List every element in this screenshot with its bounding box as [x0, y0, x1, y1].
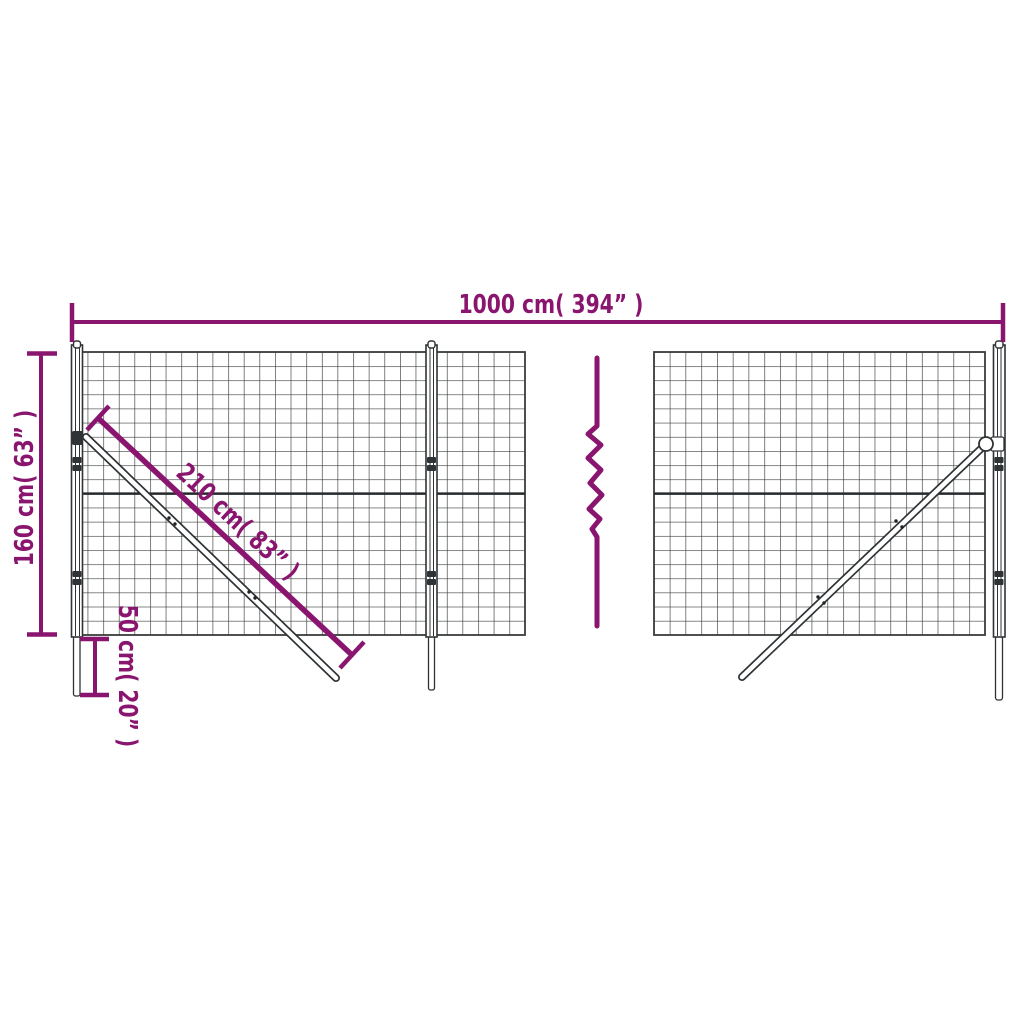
fence-diagram-svg: 1000 cm( 394” ) 160 cm( 63” ) 210 cm( 83…	[0, 0, 1024, 1024]
product-dimension-diagram: 1000 cm( 394” ) 160 cm( 63” ) 210 cm( 83…	[0, 0, 1024, 1024]
ground-offset-dimension-label: 50 cm( 20” )	[112, 605, 142, 748]
post-right-cap	[996, 341, 1004, 348]
width-dimension-label: 1000 cm( 394” )	[459, 290, 644, 320]
panel-break-icon	[588, 358, 602, 626]
fence-post-center	[426, 341, 437, 690]
post-center-cap	[428, 341, 435, 348]
post-left-body	[72, 345, 83, 637]
brace-right-eyelet	[979, 437, 993, 451]
post-right-body	[994, 345, 1006, 637]
ground-stake-center	[429, 636, 435, 690]
ground-stake-left	[74, 636, 81, 696]
post-center-body	[426, 345, 437, 637]
ground-offset-dimension	[80, 639, 109, 695]
ground-stake-right	[996, 636, 1003, 700]
height-dimension-label: 160 cm( 63” )	[10, 410, 40, 567]
brace-left-anchor-clip	[72, 431, 83, 445]
fence-post-left	[72, 341, 84, 696]
post-left-cap	[74, 341, 81, 348]
